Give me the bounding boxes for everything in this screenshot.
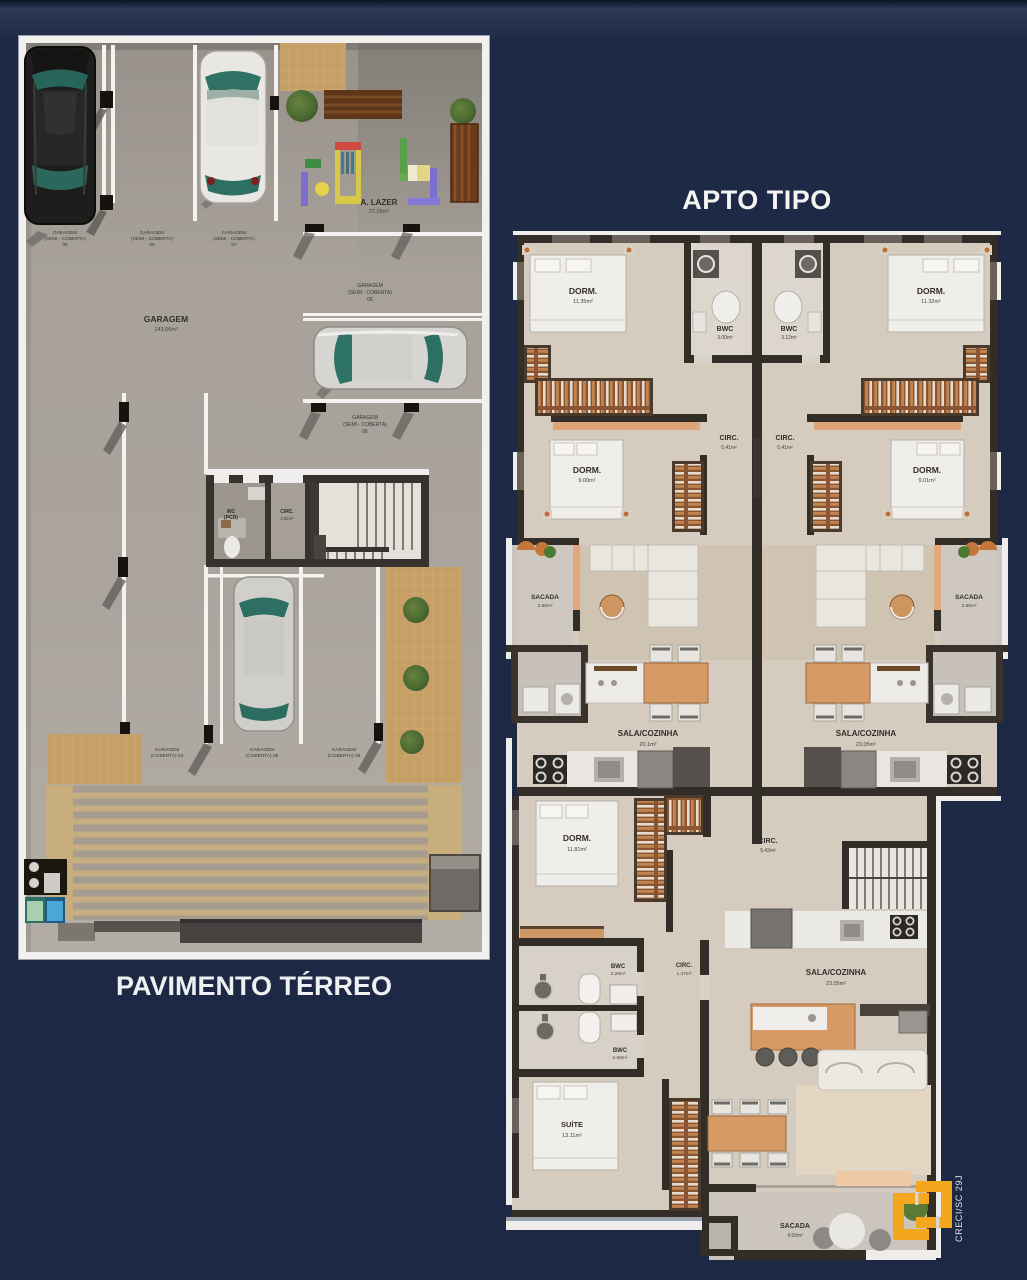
svg-text:SACADA: SACADA (780, 1223, 810, 1230)
svg-text:(COBERTA) 05: (COBERTA) 05 (246, 753, 279, 759)
svg-text:A. LAZER: A. LAZER (361, 198, 398, 207)
svg-text:11.32m²: 11.32m² (921, 299, 941, 305)
svg-text:(SEMI - COBERTA): (SEMI - COBERTA) (44, 236, 86, 242)
svg-text:2.86m²: 2.86m² (962, 603, 977, 609)
svg-text:GARAGEM: GARAGEM (357, 283, 383, 289)
svg-text:9.00m²: 9.00m² (578, 478, 595, 484)
svg-text:06: 06 (362, 429, 368, 435)
svg-text:23.05m²: 23.05m² (826, 981, 846, 987)
svg-text:3.00m²: 3.00m² (717, 335, 733, 341)
svg-text:1.47m²: 1.47m² (677, 971, 692, 977)
svg-text:BWC: BWC (781, 326, 798, 333)
svg-text:CIRC.: CIRC. (758, 838, 777, 845)
svg-text:13.11m²: 13.11m² (562, 1133, 582, 1139)
svg-text:SACADA: SACADA (531, 594, 559, 601)
svg-text:BWC: BWC (613, 1048, 628, 1054)
svg-text:SALA/COZINHA: SALA/COZINHA (806, 968, 867, 977)
svg-text:SALA/COZINHA: SALA/COZINHA (836, 729, 897, 738)
svg-text:SUÍTE: SUÍTE (561, 1120, 583, 1129)
svg-text:DORM.: DORM. (917, 286, 945, 296)
svg-text:(SEMI - COBERTA): (SEMI - COBERTA) (343, 422, 387, 428)
svg-text:CIRC.: CIRC. (719, 435, 738, 442)
svg-text:06: 06 (367, 297, 373, 303)
svg-text:08: 08 (149, 242, 155, 248)
svg-text:08: 08 (62, 242, 68, 248)
svg-text:20.1m²: 20.1m² (639, 742, 656, 748)
svg-text:CRECI/SC 29J: CRECI/SC 29J (954, 1175, 964, 1242)
svg-text:SALA/COZINHA: SALA/COZINHA (618, 729, 679, 738)
svg-text:GARAGEM: GARAGEM (144, 314, 188, 324)
svg-text:5.43m²: 5.43m² (760, 848, 776, 854)
svg-text:143.06m²: 143.06m² (154, 327, 177, 333)
svg-text:GARAGEM: GARAGEM (140, 230, 165, 236)
svg-text:5.41m²: 5.41m² (777, 445, 793, 451)
svg-text:5.41m²: 5.41m² (721, 445, 737, 451)
svg-text:2.88m²: 2.88m² (538, 603, 553, 609)
svg-text:11.35m²: 11.35m² (573, 299, 593, 305)
svg-text:CIRC.: CIRC. (280, 509, 294, 515)
svg-text:(SEMI - COBERTA): (SEMI - COBERTA) (131, 236, 173, 242)
svg-text:GARAGEM: GARAGEM (332, 747, 357, 753)
svg-text:DORM.: DORM. (573, 465, 601, 475)
svg-text:BWC: BWC (717, 326, 734, 333)
svg-text:GARAGEM: GARAGEM (250, 747, 275, 753)
svg-text:GARAGEM: GARAGEM (155, 747, 180, 753)
svg-text:DORM.: DORM. (913, 465, 941, 475)
svg-text:2.52m²: 2.52m² (280, 516, 294, 521)
svg-text:2.06m²: 2.06m² (613, 1055, 628, 1061)
svg-text:DORM.: DORM. (563, 833, 591, 843)
svg-text:GARAGEM: GARAGEM (222, 230, 247, 236)
svg-text:2.28m²: 2.28m² (611, 971, 626, 977)
svg-text:GARAGEM: GARAGEM (352, 415, 378, 421)
svg-text:CIRC.: CIRC. (676, 963, 693, 969)
svg-text:GARAGEM: GARAGEM (53, 230, 78, 236)
svg-text:(COBERTA) 04: (COBERTA) 04 (151, 753, 184, 759)
svg-text:BWC: BWC (611, 964, 626, 970)
svg-text:3.12m²: 3.12m² (781, 335, 797, 341)
svg-text:(COBERTA) 06: (COBERTA) 06 (328, 753, 361, 759)
svg-text:07: 07 (231, 242, 237, 248)
svg-text:9.01m²: 9.01m² (918, 478, 935, 484)
svg-text:(SEMI - COBERTA): (SEMI - COBERTA) (213, 236, 255, 242)
svg-text:(SEMI - COBERTA): (SEMI - COBERTA) (348, 290, 392, 296)
svg-text:SACADA: SACADA (955, 594, 983, 601)
svg-text:27.25m²: 27.25m² (369, 209, 389, 215)
svg-text:CIRC.: CIRC. (775, 435, 794, 442)
svg-text:23.05m²: 23.05m² (856, 742, 876, 748)
svg-text:(PCD): (PCD) (224, 515, 238, 521)
svg-text:DORM.: DORM. (569, 286, 597, 296)
svg-text:4.50m²: 4.50m² (787, 1233, 803, 1239)
svg-text:11.81m²: 11.81m² (567, 847, 587, 853)
